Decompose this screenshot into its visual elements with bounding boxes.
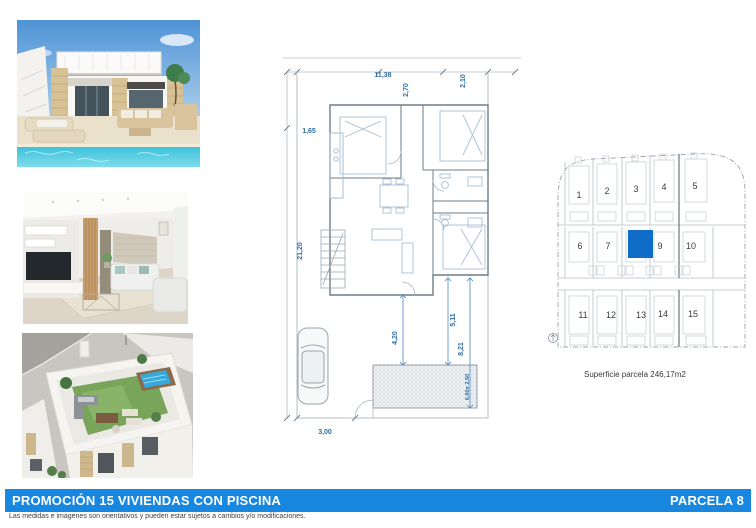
plot-number-9: 9 [657,241,662,251]
dim-label-entry-width: 2,10 [460,74,467,88]
plot-number-6: 6 [577,241,582,251]
plot-number-11: 11 [578,310,587,320]
plot-number-7: 7 [605,241,610,251]
dim-label-side-setback: 1,65 [302,128,316,135]
title-banner: PROMOCIÓN 15 VIVIENDAS CON PISCINA PARCE… [5,489,751,512]
promotion-title: PROMOCIÓN 15 VIVIENDAS CON PISCINA [12,493,281,508]
plot-number-2: 2 [604,186,609,196]
plot-number-3: 3 [633,184,638,194]
photo-villa-exterior [17,20,200,167]
dim-label-height-left: 21,20 [297,242,304,260]
dim-label-porch-depth: 2,70 [403,83,410,97]
plot-number-10: 10 [686,241,696,251]
dim-label-pool-size: 6,00x 2,50 [465,374,471,400]
plot-number-1: 1 [576,190,581,200]
plot-number-12: 12 [606,310,616,320]
plot-number-4: 4 [661,182,666,192]
parcel-badge: PARCELA 8 [670,493,744,508]
disclaimer-text: Las medidas e imagenes son orientativos … [9,513,306,520]
plot-number-13: 13 [636,310,646,320]
photo-rooftop-aerial [22,333,193,478]
floor-plan: 11,38 2,70 2,10 1,65 21,20 4,20 5,11 8,2… [283,33,528,445]
plot-number-5: 5 [692,181,697,191]
plot-number-15: 15 [688,309,698,319]
dim-label-drive-width: 3,00 [318,429,332,436]
dim-label-garden-height: 8,21 [458,342,465,356]
photo-living-room [23,192,188,324]
plot-number-14: 14 [658,309,668,319]
dim-label-width-top: 11,38 [374,72,391,79]
brochure-page: 11,38 2,70 2,10 1,65 21,20 4,20 5,11 8,2… [0,0,756,528]
parcel-surface-caption: Superficie parcela 246,17m2 [584,370,686,379]
compass-icon [549,334,558,343]
highlighted-plot-8 [628,230,653,258]
site-map: 1 2 3 4 5 6 7 9 10 11 12 13 14 15 [545,148,755,383]
dim-label-garden-depth: 4,20 [392,331,399,345]
dim-label-pool-offset: 5,11 [450,313,457,326]
